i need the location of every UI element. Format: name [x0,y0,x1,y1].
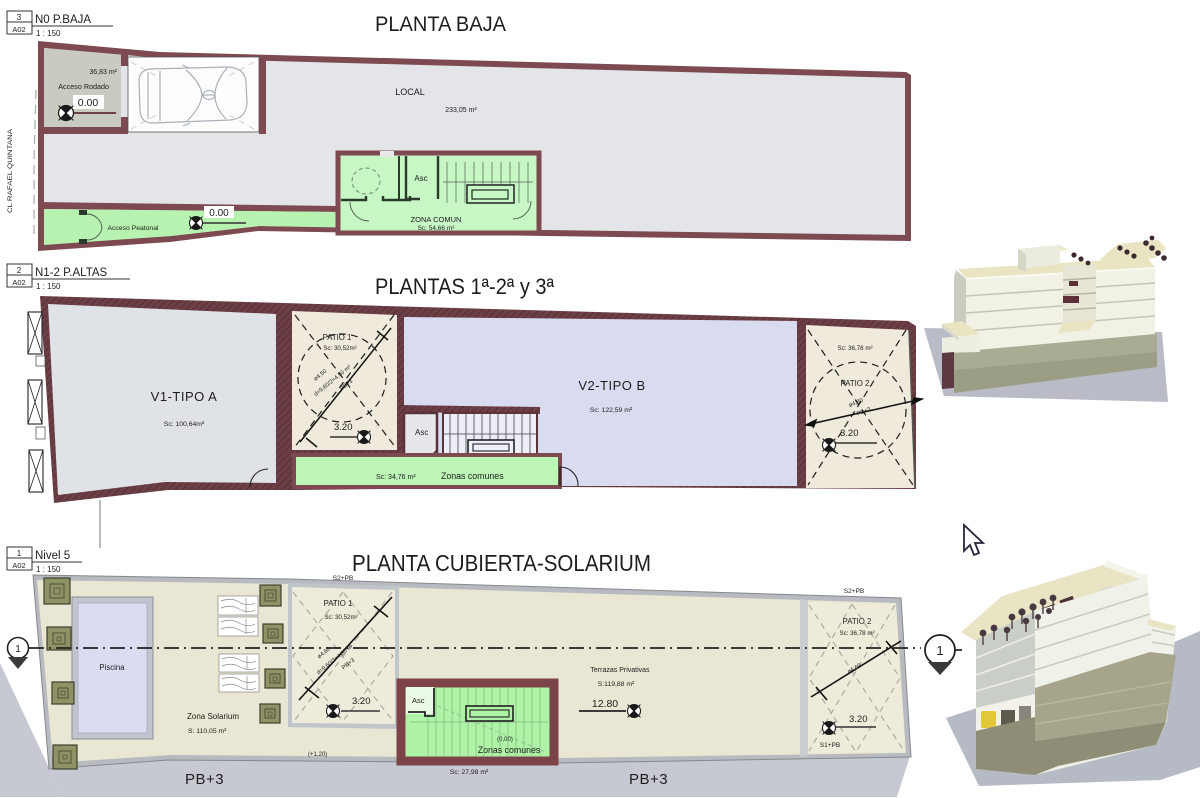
svg-text:PB+3: PB+3 [629,771,668,788]
svg-text:Sc: 36,78 m²: Sc: 36,78 m² [837,345,872,352]
svg-text:Acceso Rodado: Acceso Rodado [58,82,109,91]
svg-text:3.20: 3.20 [840,428,859,439]
svg-text:Sc: 54,66 m²: Sc: 54,66 m² [418,225,456,232]
svg-text:A02: A02 [12,561,25,570]
svg-text:Sc: 30,52m²: Sc: 30,52m² [323,345,356,352]
svg-text:ZONA COMUN: ZONA COMUN [411,215,462,224]
svg-text:Asc: Asc [414,174,427,183]
svg-text:36,83 m²: 36,83 m² [89,69,117,76]
svg-text:1: 1 [15,644,21,655]
svg-text:3.20: 3.20 [849,714,868,725]
svg-text:233,05 m²: 233,05 m² [445,107,477,114]
svg-text:0.00: 0.00 [209,208,229,219]
svg-text:1 : 150: 1 : 150 [36,29,61,38]
svg-text:CL RAFAEL QUINTANA: CL RAFAEL QUINTANA [7,128,14,213]
svg-text:V1-TIPO A: V1-TIPO A [151,389,218,404]
svg-text:S:119,88 m²: S:119,88 m² [598,681,635,688]
svg-text:S1+PB: S1+PB [820,742,840,749]
svg-text:S2+PB: S2+PB [333,575,353,582]
svg-text:N0 P.BAJA: N0 P.BAJA [35,14,91,26]
svg-text:PLANTA BAJA: PLANTA BAJA [375,12,507,36]
svg-text:Sc: 122,59 m²: Sc: 122,59 m² [590,407,633,414]
svg-text:PATIO 1: PATIO 1 [324,599,353,608]
svg-text:1 : 150: 1 : 150 [36,565,61,574]
svg-text:12.80: 12.80 [592,698,618,710]
svg-text:S: 110,05 m²: S: 110,05 m² [188,728,227,735]
svg-text:A02: A02 [12,278,25,287]
svg-text:Zona Solarium: Zona Solarium [187,712,239,721]
svg-text:1: 1 [17,549,22,558]
svg-text:Sc: 30,52m²: Sc: 30,52m² [324,614,357,621]
svg-text:Zonas comunes: Zonas comunes [478,745,541,755]
svg-text:3.20: 3.20 [352,696,371,707]
svg-text:N1-2 P.ALTAS: N1-2 P.ALTAS [35,267,108,279]
svg-text:A02: A02 [12,25,25,34]
svg-text:Nivel 5: Nivel 5 [35,550,70,562]
svg-text:Sc: 34,76 m²: Sc: 34,76 m² [376,474,416,481]
svg-text:Piscina: Piscina [99,663,125,672]
svg-text:Zonas comunes: Zonas comunes [441,471,504,481]
svg-text:Sc: 100,64m²: Sc: 100,64m² [164,421,205,428]
svg-text:1: 1 [936,643,943,658]
svg-text:V2-TIPO B: V2-TIPO B [578,378,645,393]
svg-text:Acceso Peatonal: Acceso Peatonal [107,225,158,232]
svg-text:2: 2 [17,266,22,275]
svg-text:Terrazas Privativas: Terrazas Privativas [590,667,650,674]
svg-text:PLANTA CUBIERTA-SOLARIUM: PLANTA CUBIERTA-SOLARIUM [352,550,651,576]
svg-text:Asc: Asc [412,696,425,705]
svg-text:3: 3 [17,13,22,22]
svg-text:(0,00): (0,00) [497,737,513,743]
svg-text:PB+3: PB+3 [185,771,224,788]
svg-text:PLANTAS 1ª-2ª y 3ª: PLANTAS 1ª-2ª y 3ª [375,274,555,299]
svg-text:3.20: 3.20 [334,422,353,433]
svg-text:PATIO 2: PATIO 2 [841,379,870,388]
svg-text:Asc: Asc [415,428,428,437]
svg-text:(+1,20): (+1,20) [308,752,327,758]
svg-text:0.00: 0.00 [78,97,99,109]
svg-text:Sc: 36,78 m²: Sc: 36,78 m² [839,630,874,637]
svg-text:1 : 150: 1 : 150 [36,282,61,291]
svg-text:PATIO 1: PATIO 1 [323,333,352,342]
svg-text:S2+PB: S2+PB [844,588,864,595]
svg-text:PATIO 2: PATIO 2 [843,617,872,626]
svg-text:LOCAL: LOCAL [395,87,425,97]
svg-text:Sc: 27,98 m²: Sc: 27,98 m² [450,769,489,776]
